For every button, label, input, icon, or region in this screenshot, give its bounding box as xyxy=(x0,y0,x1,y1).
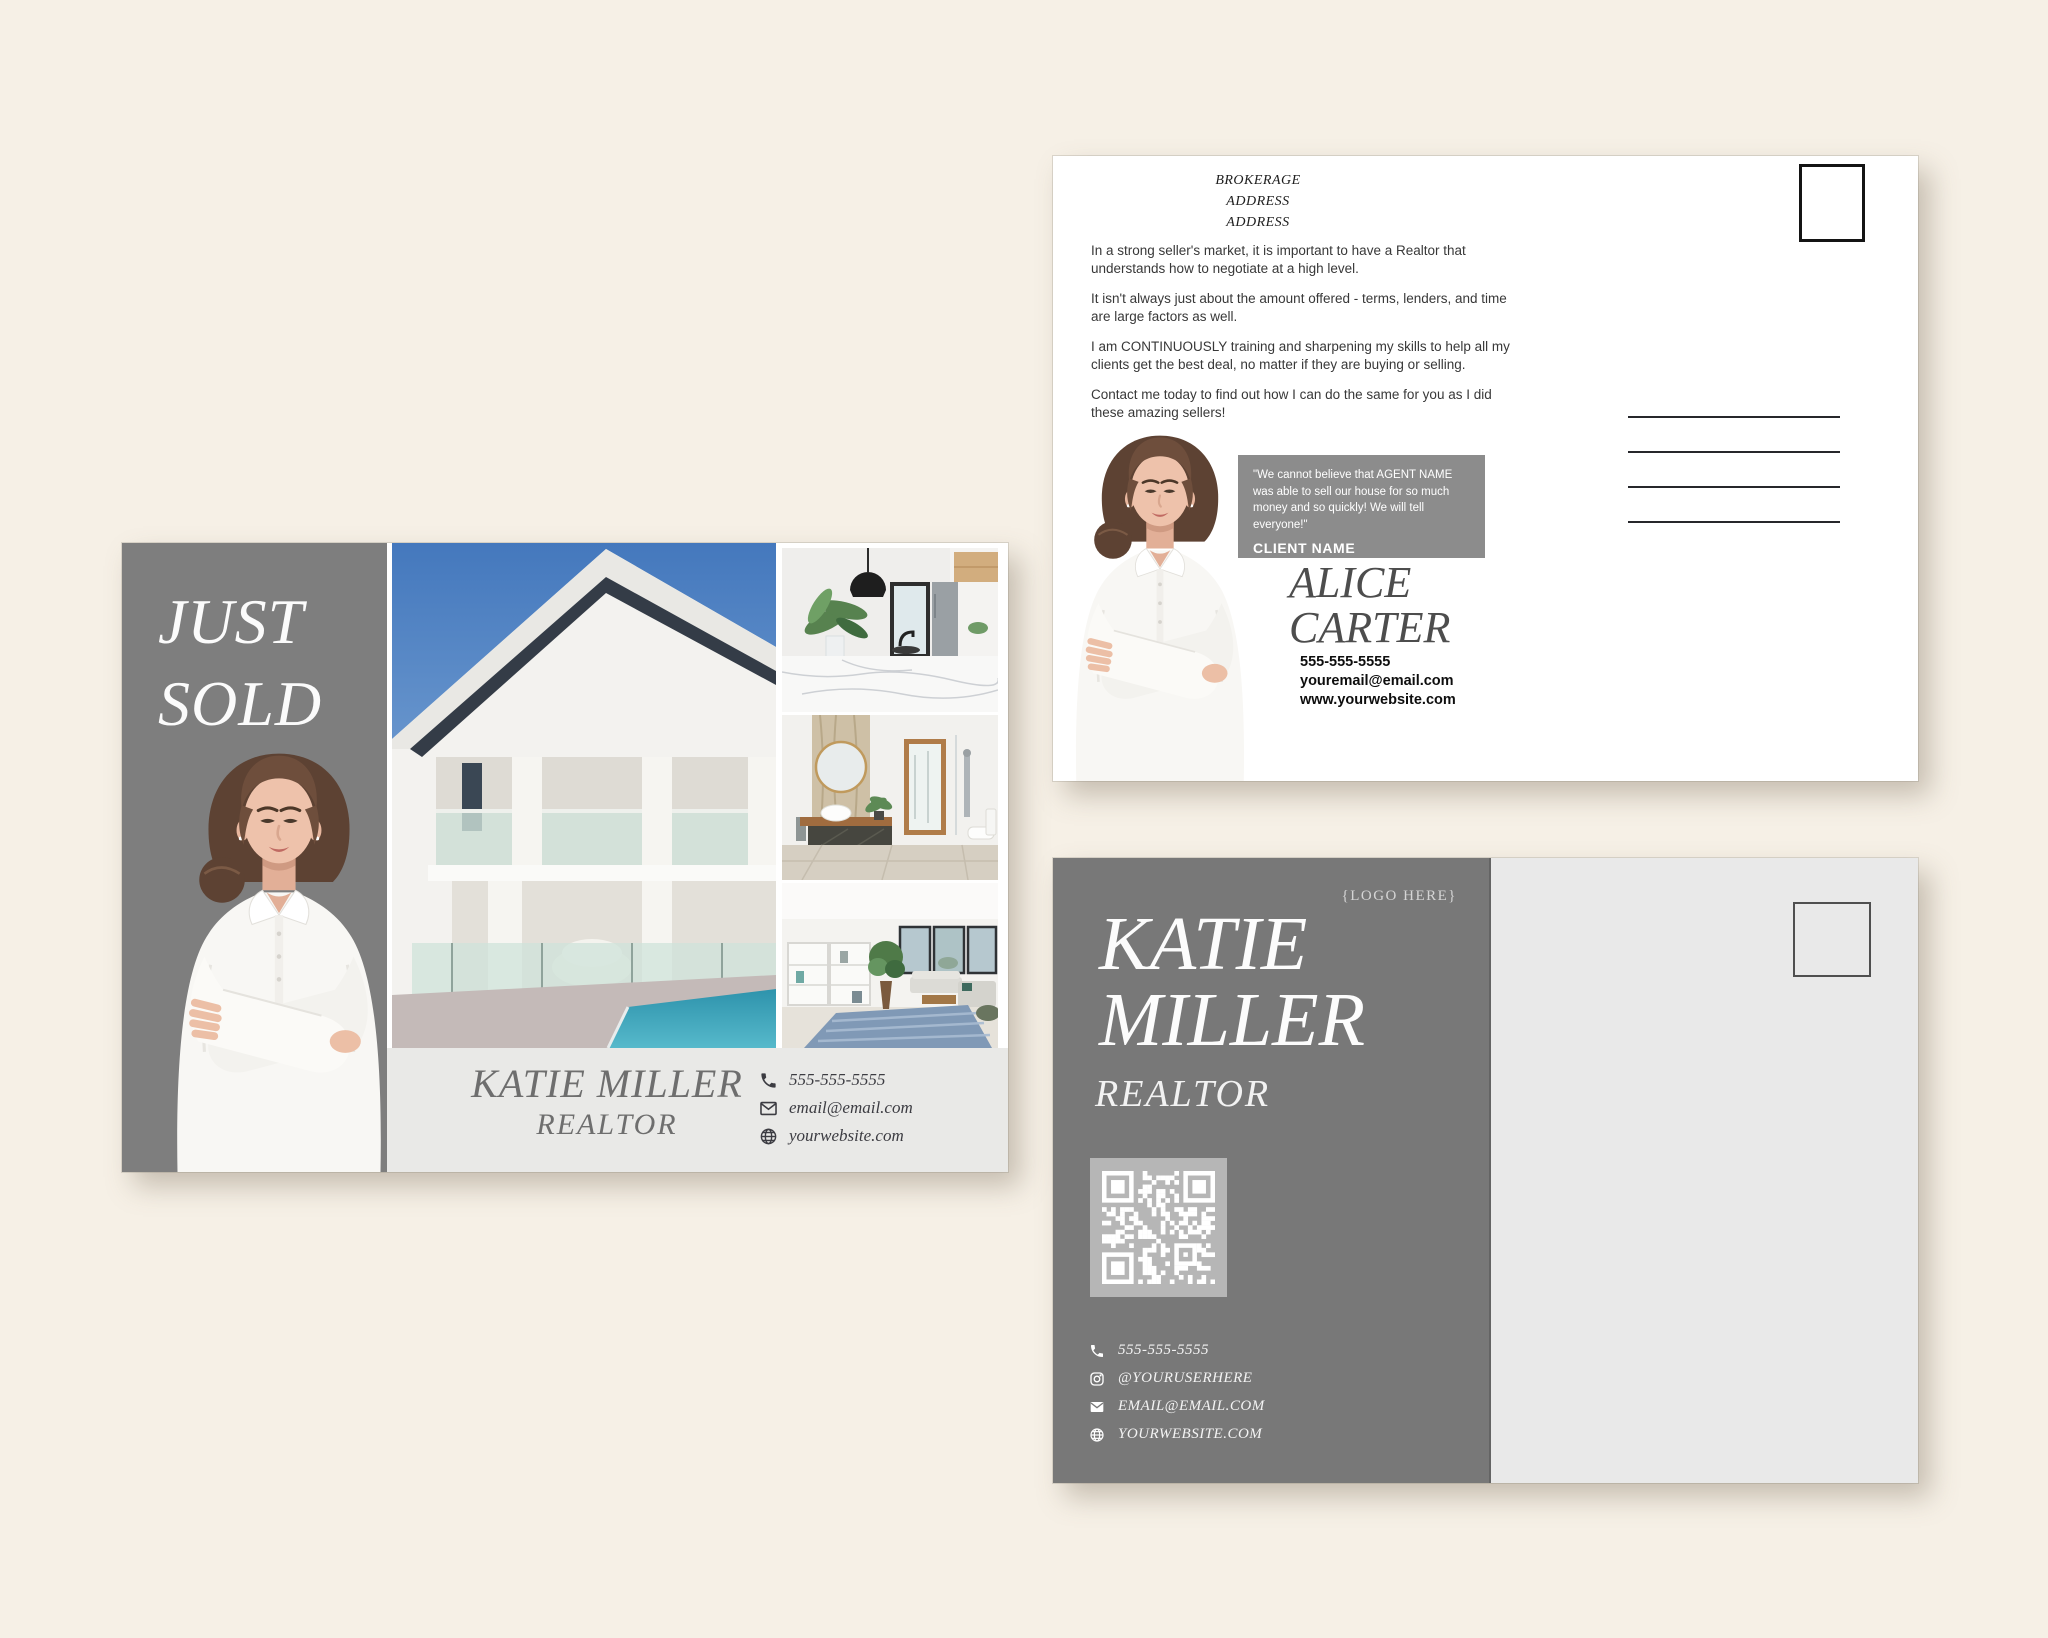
back-agent-last-name: CARTER xyxy=(1289,605,1450,650)
stamp-box xyxy=(1799,164,1865,242)
branding-phone-row: 555-555-5555 xyxy=(1089,1342,1265,1359)
address-line xyxy=(1628,521,1840,523)
qr-code xyxy=(1090,1158,1227,1297)
front-email: email@email.com xyxy=(789,1098,913,1118)
testimonial-quote: "We cannot believe that AGENT NAME was a… xyxy=(1253,467,1470,533)
front-phone: 555-555-5555 xyxy=(789,1070,885,1090)
front-email-row: email@email.com xyxy=(759,1098,913,1118)
branding-panel: {LOGO HERE} KATIE MILLER REALTOR 555-555… xyxy=(1053,858,1491,1483)
paragraph-1: In a strong seller's market, it is impor… xyxy=(1091,242,1527,277)
envelope-icon xyxy=(759,1099,778,1118)
testimonial-client-name: CLIENT NAME xyxy=(1253,540,1470,556)
globe-icon xyxy=(1089,1427,1105,1443)
branding-email-row: EMAIL@EMAIL.COM xyxy=(1089,1398,1265,1415)
instagram-icon xyxy=(1089,1371,1105,1387)
bathroom-photo xyxy=(782,715,998,880)
testimonial-box: "We cannot believe that AGENT NAME was a… xyxy=(1238,455,1485,558)
back-agent-name: ALICE CARTER xyxy=(1289,560,1450,650)
branding-website-row: YOURWEBSITE.COM xyxy=(1089,1426,1265,1443)
front-phone-row: 555-555-5555 xyxy=(759,1070,913,1090)
back-phone: 555-555-5555 xyxy=(1300,653,1456,672)
globe-icon xyxy=(759,1127,778,1146)
envelope-icon xyxy=(1089,1399,1105,1415)
house-exterior-photo xyxy=(392,543,776,1048)
kitchen-photo xyxy=(782,548,998,712)
back-website: www.yourwebsite.com xyxy=(1300,691,1456,710)
paragraph-2: It isn't always just about the amount of… xyxy=(1091,290,1527,325)
branding-website: YOURWEBSITE.COM xyxy=(1118,1426,1262,1443)
branding-instagram: @YOURUSERHERE xyxy=(1118,1370,1252,1387)
paragraph-4: Contact me today to find out how I can d… xyxy=(1091,386,1527,421)
branding-agent-title: REALTOR xyxy=(1095,1072,1270,1116)
postcard-front: JUST SOLD xyxy=(122,543,1008,1172)
address-line xyxy=(1628,451,1840,453)
postcard-mockup-page: { "front_card": { "headline": ["JUST", "… xyxy=(0,0,2048,1638)
phone-icon xyxy=(759,1071,778,1090)
brokerage-line-2: ADDRESS xyxy=(1128,191,1388,212)
front-website-row: yourwebsite.com xyxy=(759,1126,913,1146)
agent-photo xyxy=(1055,422,1265,781)
address-line xyxy=(1628,486,1840,488)
marketing-copy: In a strong seller's market, it is impor… xyxy=(1091,242,1527,434)
phone-icon xyxy=(1089,1343,1105,1359)
branding-instagram-row: @YOURUSERHERE xyxy=(1089,1370,1265,1387)
front-agent-title: REALTOR xyxy=(427,1107,787,1143)
stamp-box xyxy=(1793,902,1871,977)
back-agent-first-name: ALICE xyxy=(1289,560,1450,605)
brokerage-line-1: BROKERAGE xyxy=(1128,170,1388,191)
branding-contact-list: 555-555-5555 @YOURUSERHERE EMAIL@EMAIL.C… xyxy=(1089,1342,1265,1454)
branding-name-line-2: MILLER xyxy=(1099,982,1365,1058)
address-lines xyxy=(1628,416,1840,556)
front-agent-name-block: KATIE MILLER REALTOR xyxy=(427,1061,787,1143)
branding-email: EMAIL@EMAIL.COM xyxy=(1118,1398,1265,1415)
branding-agent-name: KATIE MILLER xyxy=(1099,906,1365,1058)
branding-name-line-1: KATIE xyxy=(1099,906,1365,982)
address-line xyxy=(1628,416,1840,418)
front-contact-list: 555-555-5555 email@email.com yourwebsite… xyxy=(759,1070,913,1154)
front-agent-name: KATIE MILLER xyxy=(427,1061,787,1107)
paragraph-3: I am CONTINUOUSLY training and sharpenin… xyxy=(1091,338,1527,373)
front-contact-bar: KATIE MILLER REALTOR 555-555-5555 email@… xyxy=(387,1048,1008,1172)
back-contact-block: 555-555-5555 youremail@email.com www.you… xyxy=(1300,653,1456,710)
back-email: youremail@email.com xyxy=(1300,672,1456,691)
branding-phone: 555-555-5555 xyxy=(1118,1342,1209,1359)
headline-line-1: JUST xyxy=(158,581,322,663)
headline: JUST SOLD xyxy=(158,581,322,745)
headline-line-2: SOLD xyxy=(158,663,322,745)
front-website: yourwebsite.com xyxy=(789,1126,904,1146)
postcard-back-branding: {LOGO HERE} KATIE MILLER REALTOR 555-555… xyxy=(1053,858,1918,1483)
brokerage-address-block: BROKERAGE ADDRESS ADDRESS xyxy=(1128,170,1388,233)
living-room-photo xyxy=(782,883,998,1048)
brokerage-line-3: ADDRESS xyxy=(1128,212,1388,233)
postcard-back-message: BROKERAGE ADDRESS ADDRESS In a strong se… xyxy=(1053,156,1918,781)
agent-photo xyxy=(118,737,440,1172)
